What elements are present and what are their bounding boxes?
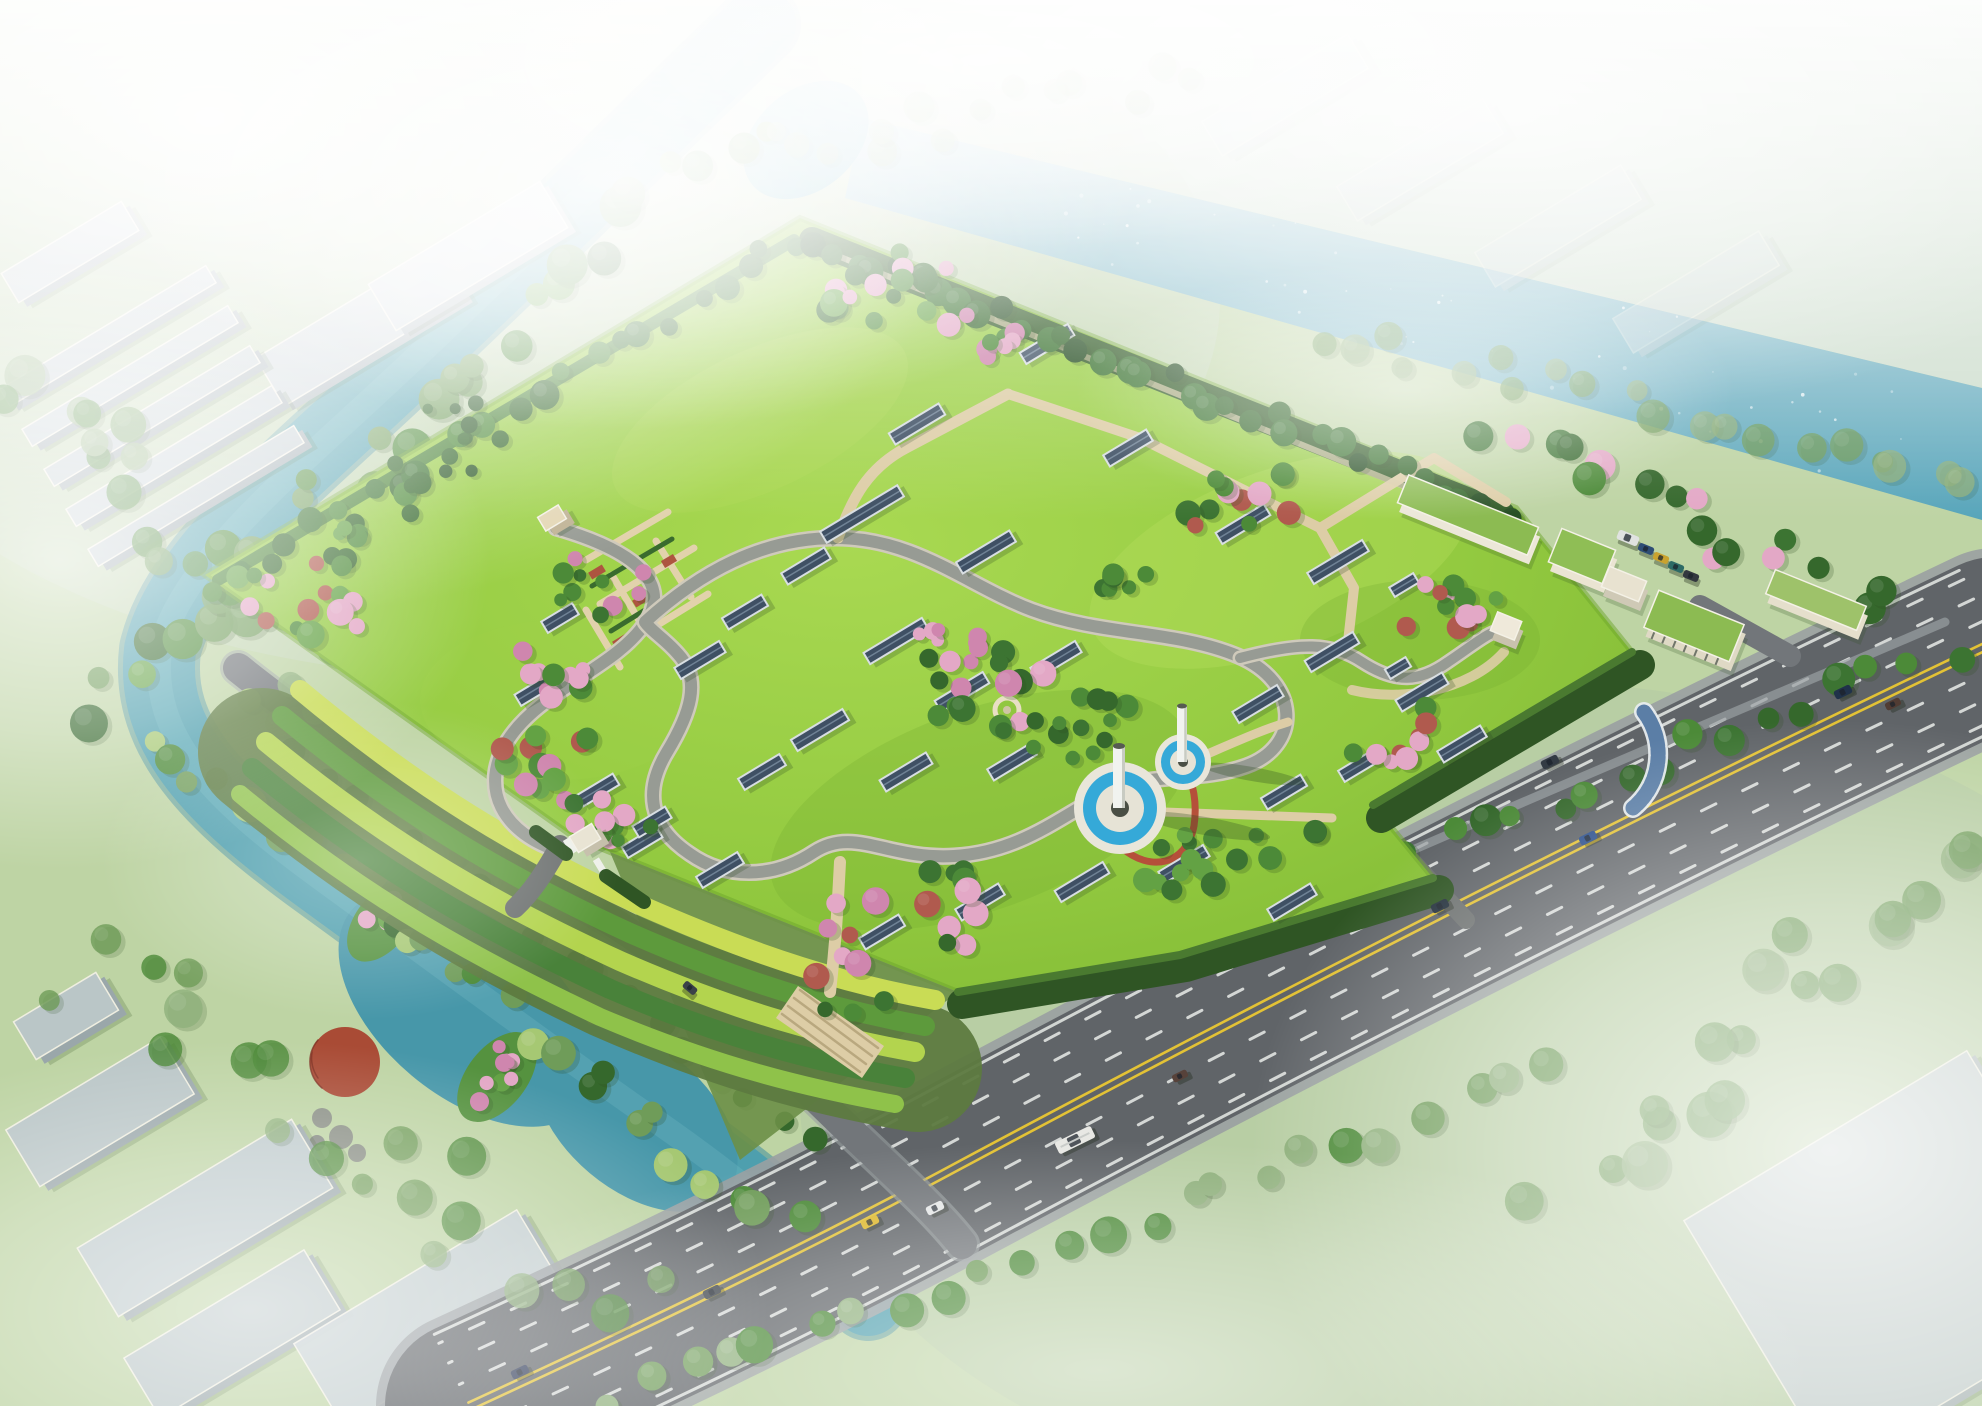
tree [1712,538,1740,566]
tree [493,1040,506,1053]
tree [1052,716,1066,730]
tree [918,860,941,883]
tree [995,722,1012,739]
tree [1853,655,1877,679]
tree [513,641,533,661]
tree [862,887,890,915]
tree [1489,591,1504,606]
tree [928,705,949,726]
tree [919,649,938,668]
tree [592,607,609,624]
tree [995,670,1022,697]
tree [1949,647,1975,673]
tree [1395,747,1418,770]
tree [520,663,541,684]
shape [1177,704,1187,709]
tree [1807,557,1829,579]
tree [939,651,960,672]
tree [635,564,651,580]
tree [803,963,829,989]
tree [1102,563,1124,585]
tree [641,1102,662,1123]
shape [1075,260,1735,520]
tree [1468,605,1487,624]
tree [643,819,658,834]
tree [1258,846,1282,870]
tree [164,989,203,1028]
tree [1026,740,1041,755]
tree [1026,712,1043,729]
tree [576,727,598,749]
tree [1866,576,1896,606]
tree [1096,732,1113,749]
tree [874,991,894,1011]
tree [803,1127,828,1152]
tree [631,586,646,601]
tree [930,671,948,689]
aerial-render-viewport [0,0,1982,1406]
tree [542,663,565,686]
tree [842,927,859,944]
tree [1397,617,1416,636]
shape [1003,706,1011,714]
tree [1073,720,1090,737]
tree [819,919,838,938]
shape [1113,743,1125,749]
tree [504,1057,515,1068]
tree [990,654,1008,672]
tree [969,638,988,657]
tree [1098,691,1117,710]
tree [91,924,122,955]
tree [844,950,871,977]
tree [1432,585,1447,600]
tree [1417,576,1434,593]
shape [1184,706,1187,762]
aerial-render-canvas [0,0,1982,1406]
tree [1201,872,1226,897]
tree [1762,547,1785,570]
tree [955,877,982,904]
tree [591,1061,615,1085]
tree [1344,743,1363,762]
tree [595,575,609,589]
tree [1895,653,1917,675]
tree [914,891,941,918]
tree [541,1036,576,1071]
tree [826,893,846,913]
tree [1308,823,1327,842]
shape [100,700,620,1020]
shape [1122,746,1125,808]
tree [1161,879,1182,900]
tree [554,593,567,606]
tree [1086,745,1101,760]
tree [949,695,976,722]
tree [1153,839,1170,856]
tree [39,990,60,1011]
tree [1415,712,1437,734]
tree [932,623,946,637]
tree [569,669,589,689]
tree [1226,849,1248,871]
tree [1137,566,1154,583]
tree [1103,713,1117,727]
tree [844,1003,862,1021]
tree [1065,751,1080,766]
tree [817,1002,833,1018]
tree [1366,744,1387,765]
tree [939,934,957,952]
